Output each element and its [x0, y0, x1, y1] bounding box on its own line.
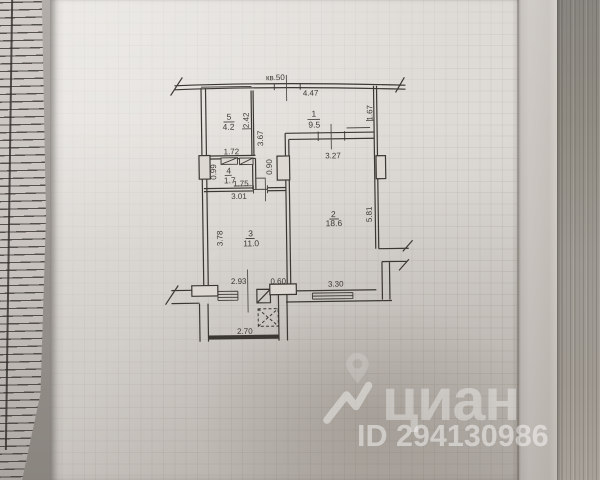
svg-text:2.93: 2.93: [231, 277, 247, 286]
svg-text:4.47: 4.47: [303, 89, 319, 98]
svg-text:5.81: 5.81: [365, 206, 374, 222]
svg-text:1.75: 1.75: [233, 179, 249, 188]
svg-text:ID 294130986: ID 294130986: [357, 419, 549, 453]
svg-text:4: 4: [226, 166, 231, 176]
svg-text:1.67: 1.67: [365, 104, 374, 120]
svg-text:4.2: 4.2: [223, 122, 235, 132]
svg-text:3.01: 3.01: [231, 192, 247, 201]
svg-text:0.60: 0.60: [270, 277, 286, 286]
svg-text:2.70: 2.70: [237, 327, 253, 336]
svg-text:3.30: 3.30: [328, 279, 344, 288]
svg-text:2.42: 2.42: [242, 112, 251, 128]
svg-text:3.67: 3.67: [256, 130, 265, 146]
svg-text:9.5: 9.5: [308, 119, 320, 129]
svg-text:11.0: 11.0: [243, 238, 259, 248]
svg-text:5: 5: [226, 112, 231, 122]
svg-text:1: 1: [311, 109, 316, 119]
svg-text:3.27: 3.27: [325, 151, 341, 160]
svg-text:1.72: 1.72: [224, 147, 240, 156]
svg-text:кв.50: кв.50: [266, 73, 286, 82]
svg-text:0.90: 0.90: [265, 159, 274, 175]
svg-text:0.99: 0.99: [209, 164, 218, 180]
svg-text:18.6: 18.6: [326, 218, 343, 228]
svg-text:3.78: 3.78: [215, 230, 224, 246]
svg-text:3: 3: [248, 228, 253, 238]
